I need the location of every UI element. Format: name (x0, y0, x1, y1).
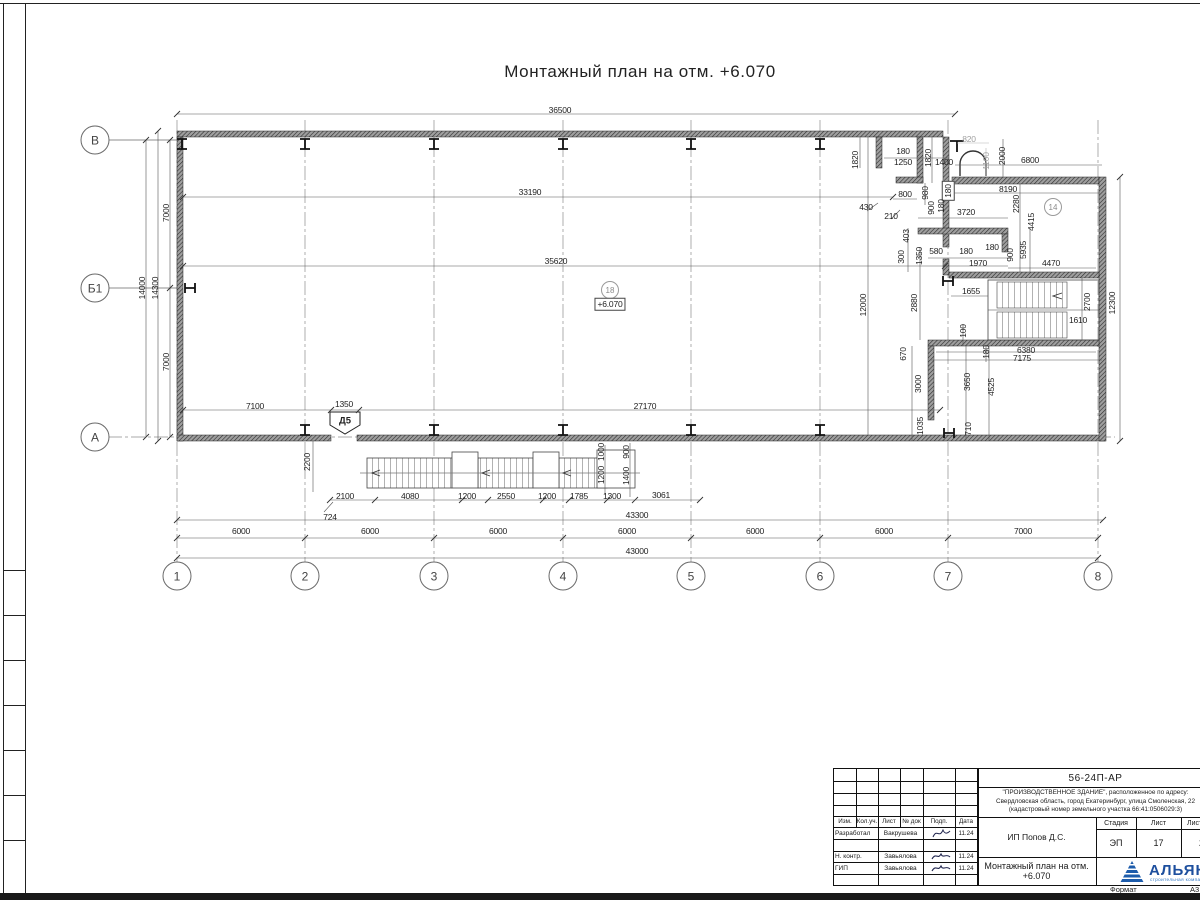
grid-axis-6: 6 (806, 562, 835, 591)
alliance-logo-icon (1120, 861, 1144, 883)
dim-label: 27170 (634, 402, 657, 411)
dim-label: 5935 (1019, 241, 1028, 259)
dim-label: 1610 (1069, 316, 1087, 325)
dim-label: 1200 (597, 466, 606, 484)
dim-label: 980 (921, 186, 930, 200)
dim-label: 6800 (1021, 156, 1039, 165)
label-layer: 3650033190356201200028801820180125018201… (0, 0, 1200, 900)
dim-label: 2100 (336, 492, 354, 501)
tb-col-kol: Кол.уч. (856, 816, 878, 827)
tb-col-data: Дата (955, 816, 977, 827)
dim-label: 300 (897, 250, 906, 264)
dim-label: 900 (927, 201, 936, 215)
dim-label: 4470 (1042, 259, 1060, 268)
dim-label: 3000 (914, 375, 923, 393)
dim-label: 4525 (987, 378, 996, 396)
dim-label: 14000 (138, 277, 147, 300)
dim-label: 670 (899, 347, 908, 361)
tb-crew-name-2: Завьялова (878, 862, 923, 874)
dim-label: 33190 (519, 188, 542, 197)
dim-label: 1655 (962, 287, 980, 296)
dim-label: 1350 (335, 400, 353, 409)
dim-label: 1300 (603, 492, 621, 501)
dim-label: 7000 (162, 204, 171, 222)
grid-axis-3: 3 (420, 562, 449, 591)
tb-crew-role-2: ГИП (835, 862, 878, 874)
dim-label: 3061 (652, 491, 670, 500)
dim-label: 820 (962, 135, 976, 144)
dim-label: 2550 (497, 492, 515, 501)
dim-label: 4415 (1027, 213, 1036, 231)
grid-axis-4: 4 (549, 562, 578, 591)
dim-label: 1250 (894, 158, 912, 167)
dim-label: 180 (982, 345, 991, 359)
tb-col-list: Лист (878, 816, 900, 827)
dim-label: 12000 (859, 294, 868, 317)
dim-label: 1200 (458, 492, 476, 501)
dim-label: 180 (937, 199, 946, 213)
dim-label: 800 (898, 190, 912, 199)
tb-sheet-value: 17 (1136, 829, 1181, 857)
dim-label: 43000 (626, 547, 649, 556)
dim-label: 4080 (401, 492, 419, 501)
tb-crew-date-0: 11.24 (955, 827, 977, 839)
dim-label: 7000 (1014, 527, 1032, 536)
dim-label: 3720 (957, 208, 975, 217)
signature (929, 850, 953, 862)
dim-label: 724 (323, 513, 337, 522)
dim-label: 1820 (924, 149, 933, 167)
door-tag-label: Д5 (339, 416, 351, 427)
tb-col-izm: Изм. (834, 816, 856, 827)
dim-label: 1035 (916, 417, 925, 435)
title-block: Изм. Кол.уч. Лист № док Подп. Дата Разра… (833, 768, 1200, 886)
drawing-sheet: Монтажный план на отм. +6.070 (0, 0, 1200, 900)
dim-label: 36500 (549, 106, 572, 115)
tb-project-line3: (кадастровый номер земельного участка 66… (1009, 806, 1182, 815)
dim-label: 6000 (618, 527, 636, 536)
grid-axis-2: 2 (291, 562, 320, 591)
dim-label: 6000 (875, 527, 893, 536)
dim-label: 7100 (246, 402, 264, 411)
tb-sheets-value: 2 (1181, 829, 1200, 857)
dim-label: 403 (902, 229, 911, 243)
dim-label: 6000 (361, 527, 379, 536)
level-mark: +6.070 (594, 298, 625, 311)
dim-label: 1100 (982, 152, 991, 169)
dim-label: 210 (884, 212, 898, 221)
dim-label: 180 (985, 243, 999, 252)
grid-axis-Б1: Б1 (81, 274, 110, 303)
tb-sheets-label: Листов (1181, 817, 1200, 829)
grid-axis-8: 8 (1084, 562, 1113, 591)
dim-label: 900 (622, 445, 631, 459)
dim-label: 1970 (969, 259, 987, 268)
tb-project-line1: "ПРОИЗВОДСТВЕННОЕ ЗДАНИЕ", расположенное… (1002, 789, 1188, 798)
grid-axis-А: А (81, 423, 110, 452)
dim-label: 2700 (1083, 293, 1092, 311)
dim-label: 2000 (998, 147, 1007, 165)
room-tag: 14 (1044, 198, 1062, 216)
tb-col-podp: Подп. (923, 816, 955, 827)
dim-label: 180 (959, 247, 973, 256)
grid-axis-7: 7 (934, 562, 963, 591)
dim-label: 6000 (746, 527, 764, 536)
dim-label: 2200 (303, 453, 312, 471)
dim-label: 1785 (570, 492, 588, 501)
tb-stage-value: ЭП (1096, 829, 1136, 857)
dim-label: 6000 (232, 527, 250, 536)
tb-project-desc: "ПРОИЗВОДСТВЕННОЕ ЗДАНИЕ", расположенное… (979, 787, 1200, 817)
dim-label: 8190 (999, 185, 1017, 194)
tb-crew-role-0: Разработал (835, 827, 878, 839)
tb-client: ИП Попов Д.С. (977, 817, 1096, 857)
tb-crew-date-2: 11.24 (955, 862, 977, 874)
dim-label: 1350 (915, 247, 924, 265)
tb-crew-name-1: Завьялова (878, 851, 923, 862)
dim-label: 100 (959, 324, 968, 338)
dim-label: 35620 (545, 257, 568, 266)
dim-label: 1820 (851, 151, 860, 169)
grid-axis-1: 1 (163, 562, 192, 591)
dim-label: 43300 (626, 511, 649, 520)
tb-col-doc: № док (900, 816, 923, 827)
dim-label: 710 (964, 422, 973, 436)
tb-stage-label: Стадия (1096, 817, 1136, 829)
dim-label: 6000 (489, 527, 507, 536)
dim-label: 2280 (1012, 195, 1021, 213)
alliance-logo-subtitle: строительная компания (1150, 877, 1200, 882)
dim-label: 430 (859, 203, 873, 212)
format-label: Формат (1110, 885, 1137, 894)
signature (929, 827, 953, 839)
signature (929, 862, 953, 874)
tb-crew-name-0: Вакрушева (878, 827, 923, 839)
dim-label: 1400 (622, 467, 631, 485)
dim-label: 7175 (1013, 354, 1031, 363)
dim-label: 12300 (1108, 292, 1117, 315)
dim-label: 7000 (162, 353, 171, 371)
room-tag: 18 (601, 281, 619, 299)
format-value: А3 (1190, 885, 1199, 894)
tb-crew-role-1: Н. контр. (835, 851, 878, 862)
dim-label: 580 (929, 247, 943, 256)
dim-label: 1000 (597, 443, 606, 461)
grid-axis-В: В (81, 126, 110, 155)
dim-label: 1400 (935, 158, 953, 167)
dim-label: 1200 (538, 492, 556, 501)
tb-drawing-title: Монтажный план на отм. +6.070 (977, 857, 1096, 885)
dim-label: 900 (1006, 248, 1015, 262)
dim-label: 14300 (151, 277, 160, 300)
tb-doc-number: 56-24П-АР (977, 769, 1200, 787)
grid-axis-5: 5 (677, 562, 706, 591)
dim-label: 180 (896, 147, 910, 156)
tb-crew-date-1: 11.24 (955, 851, 977, 862)
dim-label: 2880 (910, 294, 919, 312)
dim-label: 3650 (963, 373, 972, 391)
tb-sheet-label: Лист (1136, 817, 1181, 829)
